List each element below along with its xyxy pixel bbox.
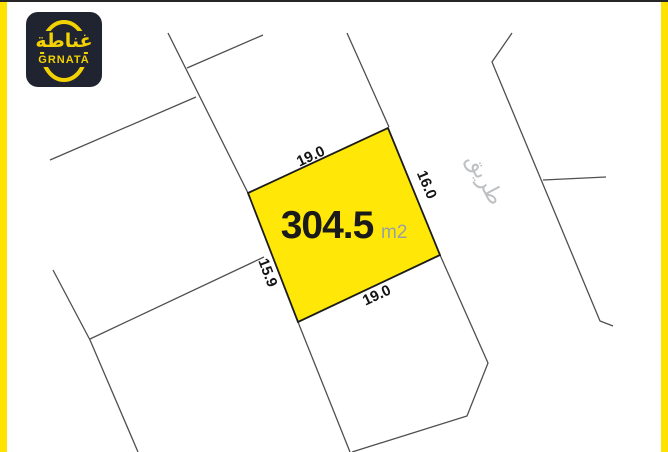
logo-arabic-wordmark: غناطة (32, 31, 95, 52)
plot-area-value: 304.5 (281, 204, 374, 247)
logo-latin-wordmark: GRNATA (36, 54, 91, 67)
road-name-label: طريق (461, 150, 508, 210)
parcel-line (543, 177, 606, 180)
parcel-line (53, 270, 138, 452)
parcel-line (90, 257, 264, 339)
grnata-logo: غناطة GRNATA (26, 12, 102, 87)
plot-area-unit: m2 (381, 222, 407, 243)
parcel-line (168, 33, 248, 193)
parcel-line (347, 33, 389, 127)
parcel-line (50, 97, 196, 160)
parcel-line (298, 322, 350, 452)
parcel-line (187, 35, 263, 68)
